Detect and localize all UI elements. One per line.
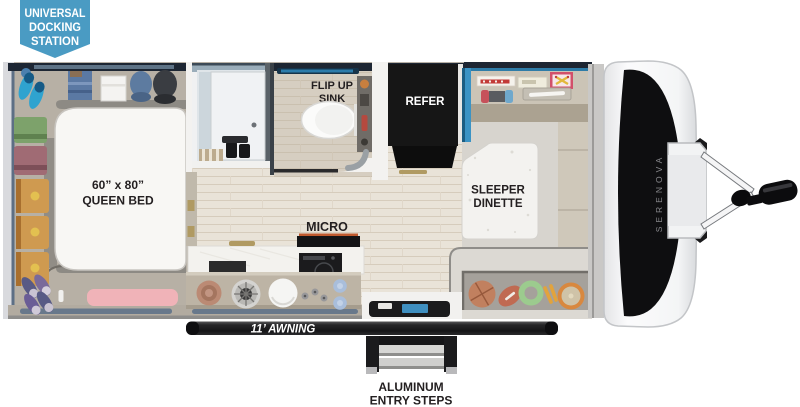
svg-text:UNIVERSAL: UNIVERSAL xyxy=(25,6,86,20)
svg-text:DOCKING: DOCKING xyxy=(29,20,81,34)
svg-text:SLEEPER: SLEEPER xyxy=(471,185,525,197)
svg-text:SERENOVA: SERENOVA xyxy=(654,154,664,233)
svg-text:ALUMINUM: ALUMINUM xyxy=(378,380,443,394)
svg-text:QUEEN BED: QUEEN BED xyxy=(82,194,154,208)
svg-text:11’ AWNING: 11’ AWNING xyxy=(251,324,316,336)
svg-text:MICRO: MICRO xyxy=(306,220,348,234)
svg-text:REFER: REFER xyxy=(406,96,446,108)
svg-text:STATION: STATION xyxy=(31,34,79,48)
svg-text:60” x 80”: 60” x 80” xyxy=(92,178,144,192)
svg-text:DINETTE: DINETTE xyxy=(473,198,523,210)
svg-text:ENTRY STEPS: ENTRY STEPS xyxy=(370,394,453,407)
svg-text:FLIP UP: FLIP UP xyxy=(311,80,353,92)
